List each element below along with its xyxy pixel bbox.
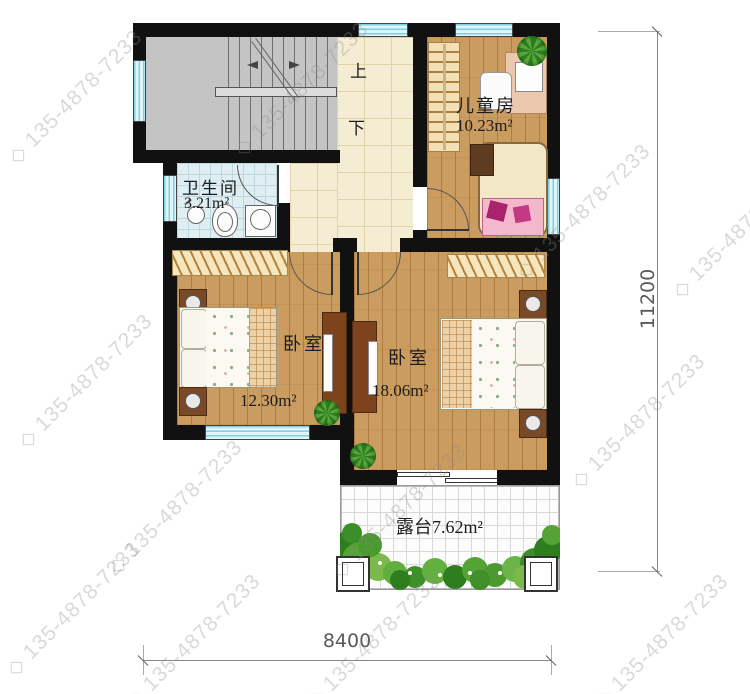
bedroom-left-door-leaf [331,252,333,295]
kids-plant-icon [517,36,547,66]
bedroom-right-nightstand-bottom [519,409,547,438]
wall-middle-b [333,238,357,252]
wall-top-a [133,23,358,37]
wall-kids-left-a [413,37,427,187]
wall-bathroom-right [277,203,290,252]
bedroom-left-pillow-1 [181,309,207,349]
wall-bedroom-left-bottom-a [163,425,205,440]
bedroom-right-door-leaf [357,252,359,295]
wall-bedroom-right-bottom-a [340,470,397,485]
bedroom-right-name-label: 卧室 [388,344,430,370]
watermark-text: ◇ 135-4878-7233 [3,25,148,170]
stair-arrow-left-icon [247,61,258,69]
window-bedroom-left-bottom [205,425,310,440]
wall-left-stair-a [133,23,146,60]
bedroom-right-nightstand-top [519,290,547,319]
hallway-floor [337,37,413,252]
bedroom-left-name-label: 卧室 [283,330,325,356]
terrace-area-label: 7.62m² [432,517,483,537]
kids-wardrobe-pole [443,44,446,150]
floor-plan-canvas: 卫生间 3.21m² 儿童房 10.23m² 卧室 12.30m² 卧室 18.… [0,0,750,694]
bedroom-left-plant-icon [314,400,340,426]
bedroom-right-plant-icon [350,443,376,469]
kids-desk-monitor [515,62,543,92]
watermark-text: ◇ 135-4878-7233 [589,569,734,694]
stair-railing [215,87,337,97]
dimension-ext-right-top [598,31,660,32]
dimension-width-label: 8400 [317,630,377,652]
bedroom-right-pillow-1 [515,321,545,365]
wall-bedroom-right-bottom-b [497,470,560,485]
window-left-bathroom [163,175,177,222]
bedroom-right-duvet [472,320,515,408]
window-left-staircase [133,60,146,122]
watermark-text: ◇ 135-4878-7233 [667,159,750,304]
sliding-door-panel-right [445,478,498,483]
bathroom-area-label: 3.21m² [184,195,229,213]
bedroom-right-area-label: 18.06m² [372,381,429,401]
watermark-text: ◇ 135-4878-7233 [103,435,248,580]
hallway-floor-extension [290,163,337,252]
terrace-name-label: 露台 [396,517,432,537]
dimension-height-label: 11200 [637,263,659,335]
bedroom-left-blanket [249,308,276,387]
bathroom-door-leaf [277,165,279,207]
stair-up-label: 上 [350,57,367,82]
wall-top-b [408,23,455,37]
watermark-text: ◇ 135-4878-7233 [121,569,266,694]
watermark-text: ◇ 135-4878-7233 [1,537,146,682]
washing-machine-drum-icon [250,209,271,230]
bedroom-left-pillow-2 [181,349,207,388]
bedroom-left-duvet [206,308,249,387]
bedroom-right-blanket [442,320,472,408]
wall-right-b [547,235,560,485]
kids-pillow-2 [513,205,532,224]
kids-room-door-leaf [427,229,469,231]
dimension-line-bottom [143,660,551,661]
window-top-kids-room [455,23,513,37]
toilet-bowl-icon [217,212,233,232]
kids-room-area-label: 10.23m² [456,116,513,136]
sliding-door-panel-left [397,472,450,477]
kids-room-name-label: 儿童房 [456,92,516,118]
terrace-column-right [524,556,558,592]
wall-right-a [547,23,560,178]
kids-dresser [470,144,494,176]
terrace-column-left [336,556,370,592]
watermark-text: ◇ 135-4878-7233 [566,349,711,494]
stair-arrow-right-icon [289,61,300,69]
wall-bedroom-left-bottom-b [310,425,352,440]
stair-down-label: 下 [348,114,365,139]
bedroom-right-pillow-2 [515,365,545,409]
terrace-label: 露台7.62m² [396,513,483,539]
wall-left-lower-a [163,150,177,175]
bedroom-left-nightstand-bottom [179,387,207,416]
bedroom-right-wardrobe [447,254,545,278]
bedroom-left-area-label: 12.30m² [240,391,297,411]
wall-middle-c [400,238,547,252]
window-top-hallway [358,23,408,37]
window-right-kids-room [547,178,560,235]
bedroom-left-wardrobe [172,250,288,276]
dimension-ext-right-bottom [598,571,660,572]
watermark-text: ◇ 135-4878-7233 [13,309,158,454]
